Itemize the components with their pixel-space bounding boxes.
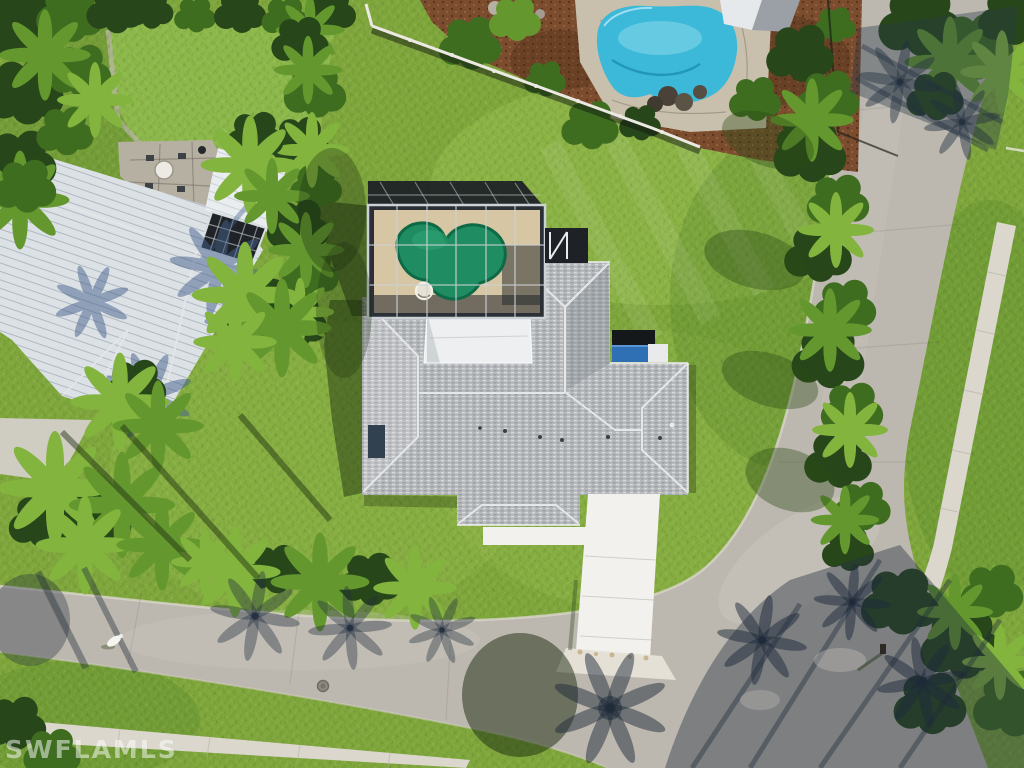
aerial-photo: SWFLAMLS [0,0,1024,768]
house-east-shadow [688,365,696,493]
grass-shadow-bottom-center [462,633,578,757]
mls-watermark: SWFLAMLS [5,735,178,764]
flat-white-roof [424,313,532,363]
manhole-cover [318,681,329,692]
pool-water-highlight [618,21,702,55]
enclosure-ne-block [545,228,588,263]
tree-shadow-on-lawn-2 [316,242,372,378]
pool-highlight [412,230,448,250]
front-walkway [483,527,588,545]
aerial-photo-canvas [0,0,1024,768]
patio-table [155,161,173,179]
west-bay-window [368,425,385,458]
grill [198,146,206,154]
driveway [576,494,660,658]
